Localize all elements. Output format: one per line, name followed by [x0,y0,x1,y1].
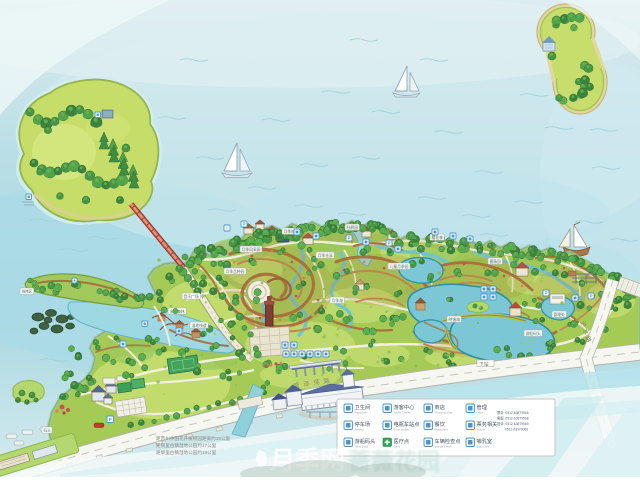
svg-text:P: P [109,417,112,422]
svg-text:电瓶车站点: 电瓶车站点 [394,420,420,428]
svg-text:杜鹃园: 杜鹃园 [347,225,359,230]
svg-text:i: i [226,226,227,231]
svg-text:医疗点: 医疗点 [394,437,410,445]
svg-text:月季品种园: 月季品种园 [226,269,245,274]
svg-text:樱花林: 樱花林 [432,235,444,240]
svg-text:Washroom: Washroom [355,410,369,414]
svg-text:游船码头: 游船码头 [526,331,541,336]
svg-text:码头: 码头 [44,428,52,433]
svg-text:音乐广场: 音乐广场 [184,294,199,299]
svg-text:管理: 管理 [477,403,488,411]
svg-text:哺乳室: 哺乳室 [477,437,493,445]
svg-text:P: P [388,241,391,246]
svg-text:明镜湖: 明镜湖 [449,317,461,322]
svg-text:Restaurant: Restaurant [435,427,448,431]
svg-text:月季风采园: 月季风采园 [242,247,261,252]
svg-text:Office: Office [477,410,484,414]
svg-text:E-car Station: E-car Station [394,427,410,431]
svg-text:餐饮: 餐饮 [435,420,446,428]
svg-text:游船码头: 游船码头 [355,437,376,445]
svg-text:游客中心: 游客中心 [394,403,415,411]
svg-text:月季花溪: 月季花溪 [318,253,333,258]
svg-text:湿地栈道: 湿地栈道 [192,323,207,328]
svg-text:Parking: Parking [355,427,365,431]
svg-text:0512-63970066: 0512-63970066 [505,428,528,432]
svg-text:P: P [545,291,548,296]
svg-text:票务: 0512-63879566: 票务: 0512-63879566 [497,410,529,415]
svg-text:下站: 下站 [479,361,489,368]
svg-text:客服: 0512-63879568: 客服: 0512-63879568 [497,416,529,421]
svg-text:儿童月季园: 儿童月季园 [390,264,409,269]
svg-text:卫生间: 卫生间 [355,403,371,411]
svg-text:P: P [348,236,351,241]
svg-text:Tourist Center: Tourist Center [394,410,411,414]
svg-text:管理处: 管理处 [554,312,566,317]
svg-text:投诉: 0512-63879569: 投诉: 0512-63879569 [497,421,529,426]
svg-text:距黎里古镇湿地公园约19公里: 距黎里古镇湿地公园约19公里 [156,449,217,456]
svg-text:车辆检查点: 车辆检查点 [435,437,461,445]
svg-text:蔷薇园: 蔷薇园 [490,259,502,264]
svg-text:P: P [590,294,593,299]
svg-text:票务相关: 票务相关 [477,420,498,428]
svg-text:停车场: 停车场 [355,420,371,428]
svg-text:烧烤区: 烧烤区 [22,289,33,294]
svg-text:Shopping Mole: Shopping Mole [435,410,453,414]
svg-text:Baby Care: Baby Care [477,444,490,448]
svg-text:距同里古镇湿地公园约17公里: 距同里古镇湿地公园约17公里 [156,442,217,449]
svg-text:商店: 商店 [435,403,445,411]
svg-text:月季湖: 月季湖 [332,298,344,303]
svg-text:距苏州中国花卉植物园距离约19公里: 距苏州中国花卉植物园距离约19公里 [156,435,230,442]
svg-text:Tickets: Tickets [477,427,486,431]
svg-text:P: P [243,222,246,227]
